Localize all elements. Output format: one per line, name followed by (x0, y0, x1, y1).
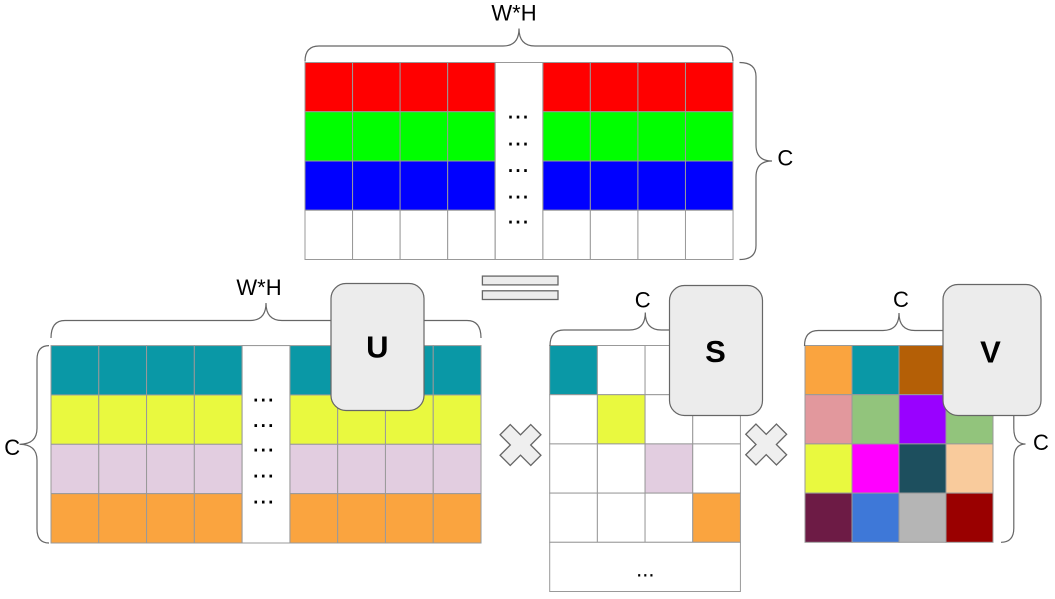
svg-text:W*H: W*H (491, 1, 536, 26)
svg-text:...: ... (252, 480, 275, 510)
svg-text:C: C (893, 287, 909, 312)
svg-text:U: U (366, 330, 388, 365)
svg-text:C: C (1033, 430, 1049, 455)
svg-text:...: ... (507, 200, 530, 230)
svg-text:...: ... (636, 557, 654, 582)
svg-text:C: C (777, 146, 793, 171)
svg-text:...: ... (507, 95, 530, 125)
svg-text:...: ... (507, 121, 530, 151)
svg-text:C: C (4, 435, 20, 460)
svg-text:V: V (980, 334, 1001, 369)
svg-text:S: S (705, 334, 726, 369)
svg-text:W*H: W*H (236, 275, 281, 300)
svg-text:C: C (635, 288, 651, 313)
